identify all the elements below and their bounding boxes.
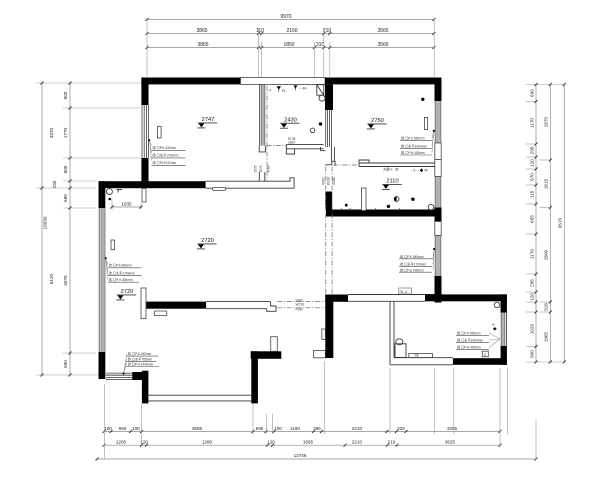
- svg-text:砖.〇P.H.400mm: 砖.〇P.H.400mm: [457, 345, 481, 350]
- svg-text:9970: 9970: [280, 14, 291, 20]
- svg-text:210: 210: [388, 440, 396, 445]
- svg-text:2600: 2600: [544, 249, 549, 260]
- svg-text:1615: 1615: [544, 178, 549, 189]
- svg-text:砖.〇P.H.400mm: 砖.〇P.H.400mm: [109, 277, 133, 282]
- svg-text:砖.〇P.H.400mm: 砖.〇P.H.400mm: [400, 267, 424, 272]
- svg-text:-J-: -J-: [397, 207, 402, 212]
- svg-text:1965: 1965: [544, 331, 549, 342]
- svg-text:K060: K060: [296, 307, 304, 311]
- svg-text:砖.〇水平1700mm: 砖.〇水平1700mm: [153, 153, 179, 158]
- svg-text:砖.〇水平765mm: 砖.〇水平765mm: [128, 357, 153, 362]
- svg-text:320: 320: [397, 426, 405, 431]
- svg-text:1665: 1665: [303, 440, 314, 445]
- svg-text:砖.〇P.K.640mm: 砖.〇P.K.640mm: [153, 145, 177, 150]
- svg-text:295: 295: [530, 279, 535, 287]
- svg-text:1770: 1770: [63, 127, 68, 138]
- svg-text:W218: W218: [296, 303, 305, 307]
- svg-text:295: 295: [530, 146, 535, 154]
- svg-text:3370: 3370: [49, 127, 54, 138]
- svg-text:5070: 5070: [63, 275, 68, 286]
- svg-text:1265: 1265: [116, 440, 127, 445]
- svg-text:100: 100: [104, 426, 112, 431]
- svg-text:4280: 4280: [267, 165, 271, 172]
- svg-text:K060: K060: [322, 177, 326, 185]
- svg-text:2750: 2750: [371, 118, 384, 124]
- svg-text:R-: R-: [282, 88, 287, 93]
- svg-text:120: 120: [530, 293, 535, 301]
- svg-text:2747: 2747: [202, 117, 215, 123]
- svg-text:395: 395: [313, 426, 321, 431]
- svg-text:3625: 3625: [445, 440, 456, 445]
- svg-text:310: 310: [316, 42, 325, 48]
- svg-text:2110: 2110: [386, 179, 398, 185]
- svg-text:砖.〇水平1700mm: 砖.〇水平1700mm: [109, 271, 135, 276]
- svg-text:K060: K060: [332, 177, 336, 185]
- svg-text:500: 500: [530, 350, 535, 358]
- svg-text:DE: DE: [415, 354, 419, 358]
- svg-text:R-: R-: [349, 207, 354, 212]
- svg-text:砖.〇P.H.1445mm: 砖.〇P.H.1445mm: [128, 362, 154, 367]
- svg-text:1035: 1035: [121, 202, 132, 207]
- svg-text:670: 670: [530, 173, 535, 181]
- svg-text:2430: 2430: [284, 118, 297, 124]
- svg-text:800: 800: [63, 165, 68, 173]
- svg-text:砖.〇P.K.260mm: 砖.〇P.K.260mm: [128, 351, 152, 356]
- svg-text:120: 120: [530, 159, 535, 167]
- svg-text:1170: 1170: [530, 249, 535, 259]
- svg-text:120: 120: [267, 440, 275, 445]
- svg-text:13746: 13746: [294, 453, 307, 458]
- svg-text:690: 690: [63, 360, 68, 368]
- svg-text:318: 318: [544, 303, 549, 311]
- svg-text:3565: 3565: [377, 42, 388, 48]
- svg-text:1570: 1570: [259, 165, 263, 172]
- svg-text:1020: 1020: [530, 323, 535, 334]
- svg-text:⋯R-: ⋯R-: [299, 86, 308, 91]
- svg-text:9515: 9515: [558, 217, 563, 228]
- svg-text:砖.〇P.H.910mm: 砖.〇P.H.910mm: [153, 160, 177, 165]
- svg-text:-J: -J: [268, 88, 271, 93]
- svg-text:1160: 1160: [290, 426, 300, 431]
- svg-text:砖.〇P.K.945mm: 砖.〇P.K.945mm: [400, 254, 424, 259]
- svg-text:-J⋯: -J⋯: [412, 168, 419, 173]
- svg-text:600: 600: [530, 89, 535, 97]
- svg-text:R·: R·: [492, 322, 496, 325]
- svg-text:3865: 3865: [197, 42, 208, 48]
- svg-text:W216: W216: [327, 177, 331, 186]
- svg-text:1535: 1535: [254, 165, 258, 172]
- svg-text:砖.〇P.K.955mm: 砖.〇P.K.955mm: [401, 136, 425, 141]
- svg-text:-J-: -J-: [339, 207, 344, 212]
- svg-text:695: 695: [256, 426, 264, 431]
- svg-text:1280: 1280: [202, 440, 213, 445]
- svg-text:1850: 1850: [283, 42, 294, 48]
- svg-text:2670: 2670: [544, 116, 549, 127]
- svg-text:W_A: W_A: [400, 290, 408, 294]
- svg-text:±820: ±820: [288, 141, 295, 145]
- svg-text:3865: 3865: [196, 28, 207, 34]
- svg-text:660: 660: [119, 426, 127, 431]
- svg-text:R-: R-: [425, 168, 430, 173]
- svg-text:砖.〇P.K.955mm: 砖.〇P.K.955mm: [457, 331, 481, 336]
- svg-text:100: 100: [274, 426, 282, 431]
- svg-text:230: 230: [52, 180, 57, 188]
- svg-text:2210: 2210: [352, 440, 363, 445]
- svg-text:6120: 6120: [49, 273, 54, 284]
- svg-text:210: 210: [323, 28, 332, 34]
- svg-text:10030: 10030: [43, 216, 48, 229]
- svg-text:2210: 2210: [352, 426, 363, 431]
- svg-text:2720: 2720: [201, 238, 214, 244]
- svg-text:100: 100: [132, 426, 140, 431]
- svg-text:砖.〇水平1400mm: 砖.〇水平1400mm: [457, 338, 483, 343]
- svg-text:砖.〇水平1700mm: 砖.〇水平1700mm: [400, 262, 426, 267]
- svg-text:115: 115: [530, 190, 535, 198]
- svg-text:大梁H：08: 大梁H：08: [383, 167, 399, 172]
- svg-text:110: 110: [256, 28, 264, 34]
- svg-text:砖.〇水平1400mm: 砖.〇水平1400mm: [401, 144, 427, 149]
- svg-text:605: 605: [530, 215, 535, 223]
- svg-text:-J-: -J-: [373, 207, 378, 212]
- svg-text:2160: 2160: [286, 28, 297, 34]
- svg-text:800: 800: [63, 91, 68, 99]
- svg-text:3585: 3585: [192, 426, 203, 431]
- svg-text:砖.〇P.H.400mm: 砖.〇P.H.400mm: [401, 150, 425, 155]
- svg-text:2720: 2720: [121, 289, 134, 295]
- svg-text:砖.〇P.F.630mm: 砖.〇P.F.630mm: [109, 263, 132, 268]
- svg-text:3565: 3565: [377, 28, 388, 34]
- svg-text:690: 690: [63, 194, 68, 202]
- svg-text:3305: 3305: [447, 426, 458, 431]
- svg-text:1170: 1170: [530, 118, 535, 128]
